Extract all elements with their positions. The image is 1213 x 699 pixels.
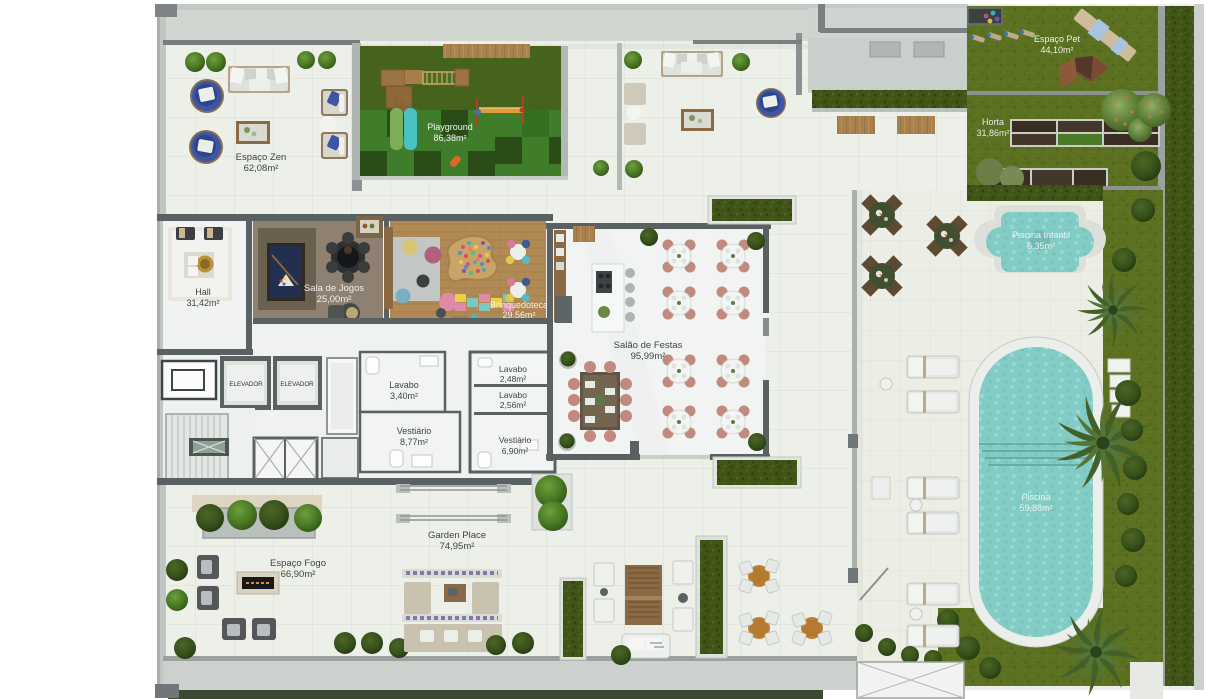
- svg-text:Vestiário: Vestiário: [397, 426, 432, 436]
- svg-text:Salão de Festas: Salão de Festas: [614, 340, 683, 351]
- svg-text:2,48m²: 2,48m²: [500, 374, 527, 384]
- svg-text:Espaço Fogo: Espaço Fogo: [270, 558, 326, 569]
- svg-text:Espaço Pet: Espaço Pet: [1034, 34, 1081, 44]
- svg-text:ELEVADOR: ELEVADOR: [280, 381, 314, 388]
- svg-text:95,99m²: 95,99m²: [631, 351, 666, 362]
- svg-text:Piscina Infantil: Piscina Infantil: [1012, 230, 1070, 240]
- svg-text:3,40m²: 3,40m²: [390, 391, 418, 401]
- svg-text:59,88m²: 59,88m²: [1019, 503, 1052, 513]
- svg-text:86,38m²: 86,38m²: [433, 133, 466, 143]
- svg-text:Lavabo: Lavabo: [389, 380, 419, 390]
- svg-text:2,56m²: 2,56m²: [500, 400, 527, 410]
- svg-text:Lavabo: Lavabo: [499, 390, 527, 400]
- svg-text:74,95m²: 74,95m²: [440, 541, 475, 552]
- svg-text:Horta: Horta: [982, 117, 1004, 127]
- svg-text:6,90m²: 6,90m²: [502, 446, 529, 456]
- svg-text:6,35m²: 6,35m²: [1027, 241, 1055, 251]
- svg-text:Playground: Playground: [427, 122, 473, 132]
- svg-text:25,00m²: 25,00m²: [317, 294, 352, 305]
- svg-text:66,90m²: 66,90m²: [281, 569, 316, 580]
- svg-text:8,77m²: 8,77m²: [400, 437, 428, 447]
- svg-text:31,86m²: 31,86m²: [976, 128, 1009, 138]
- svg-text:Sala de Jogos: Sala de Jogos: [304, 283, 364, 294]
- svg-text:62,08m²: 62,08m²: [244, 163, 279, 174]
- svg-text:Vestiário: Vestiário: [499, 435, 532, 445]
- svg-text:31,42m²: 31,42m²: [186, 298, 219, 308]
- svg-text:Lavabo: Lavabo: [499, 364, 527, 374]
- svg-text:Brinquedoteca: Brinquedoteca: [490, 300, 548, 310]
- svg-text:Piscina: Piscina: [1021, 492, 1050, 502]
- svg-text:ELEVADOR: ELEVADOR: [229, 381, 263, 388]
- svg-text:Espaço Zen: Espaço Zen: [236, 152, 287, 163]
- svg-text:Hall: Hall: [195, 287, 211, 297]
- svg-text:Garden Place: Garden Place: [428, 530, 486, 541]
- svg-text:44,10m²: 44,10m²: [1040, 45, 1073, 55]
